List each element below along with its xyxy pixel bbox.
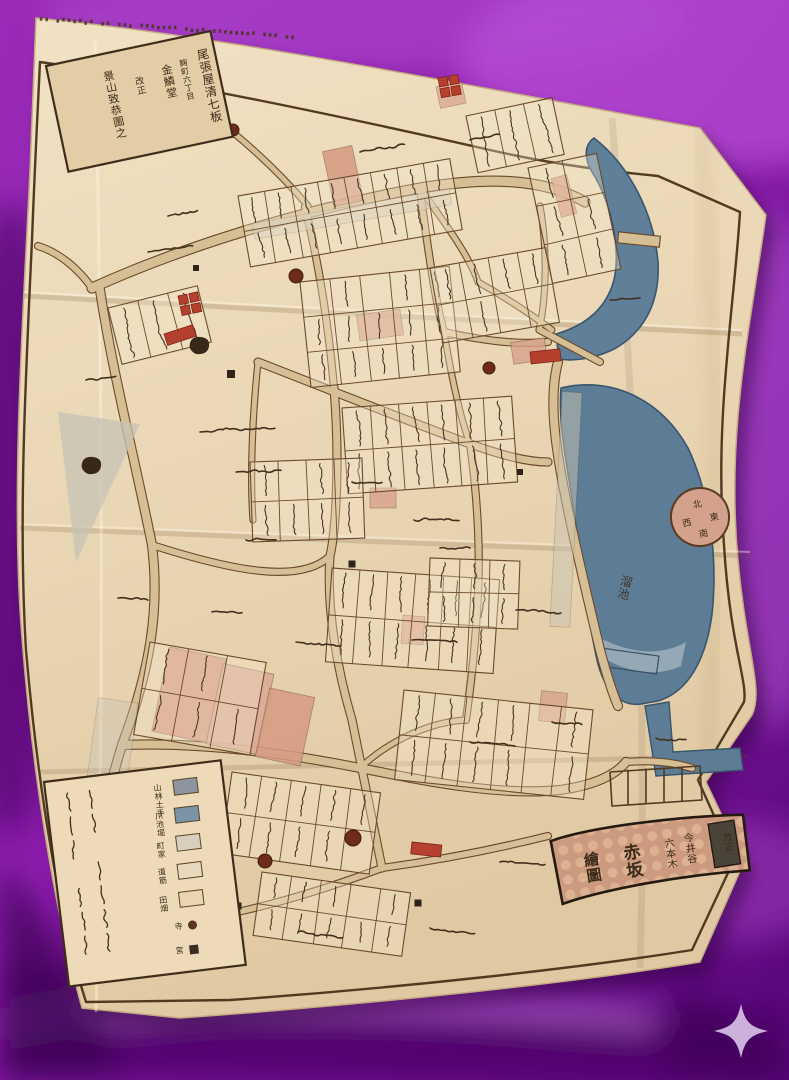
legend-swatch-water [174,805,200,823]
map-photo-canvas: 溜池 北 東 南 西 尾張屋清七板 麹町六丁目 金鱗堂 [0,0,789,1080]
legend-box: 山林土手 川池堀 町家 道筋 田畑 寺 宮 [44,760,246,986]
legend-swatch-field [178,890,204,908]
legend-swatch-hill [173,777,199,795]
photo-of-antique-map: 溜池 北 東 南 西 尾張屋清七板 麹町六丁目 金鱗堂 [0,0,789,1080]
legend-swatch-road [177,861,203,879]
svg-text:宮: 宮 [175,945,184,956]
legend-square-marker [189,944,199,954]
svg-text:寺: 寺 [174,922,183,932]
legend-swatch-town [176,833,202,851]
